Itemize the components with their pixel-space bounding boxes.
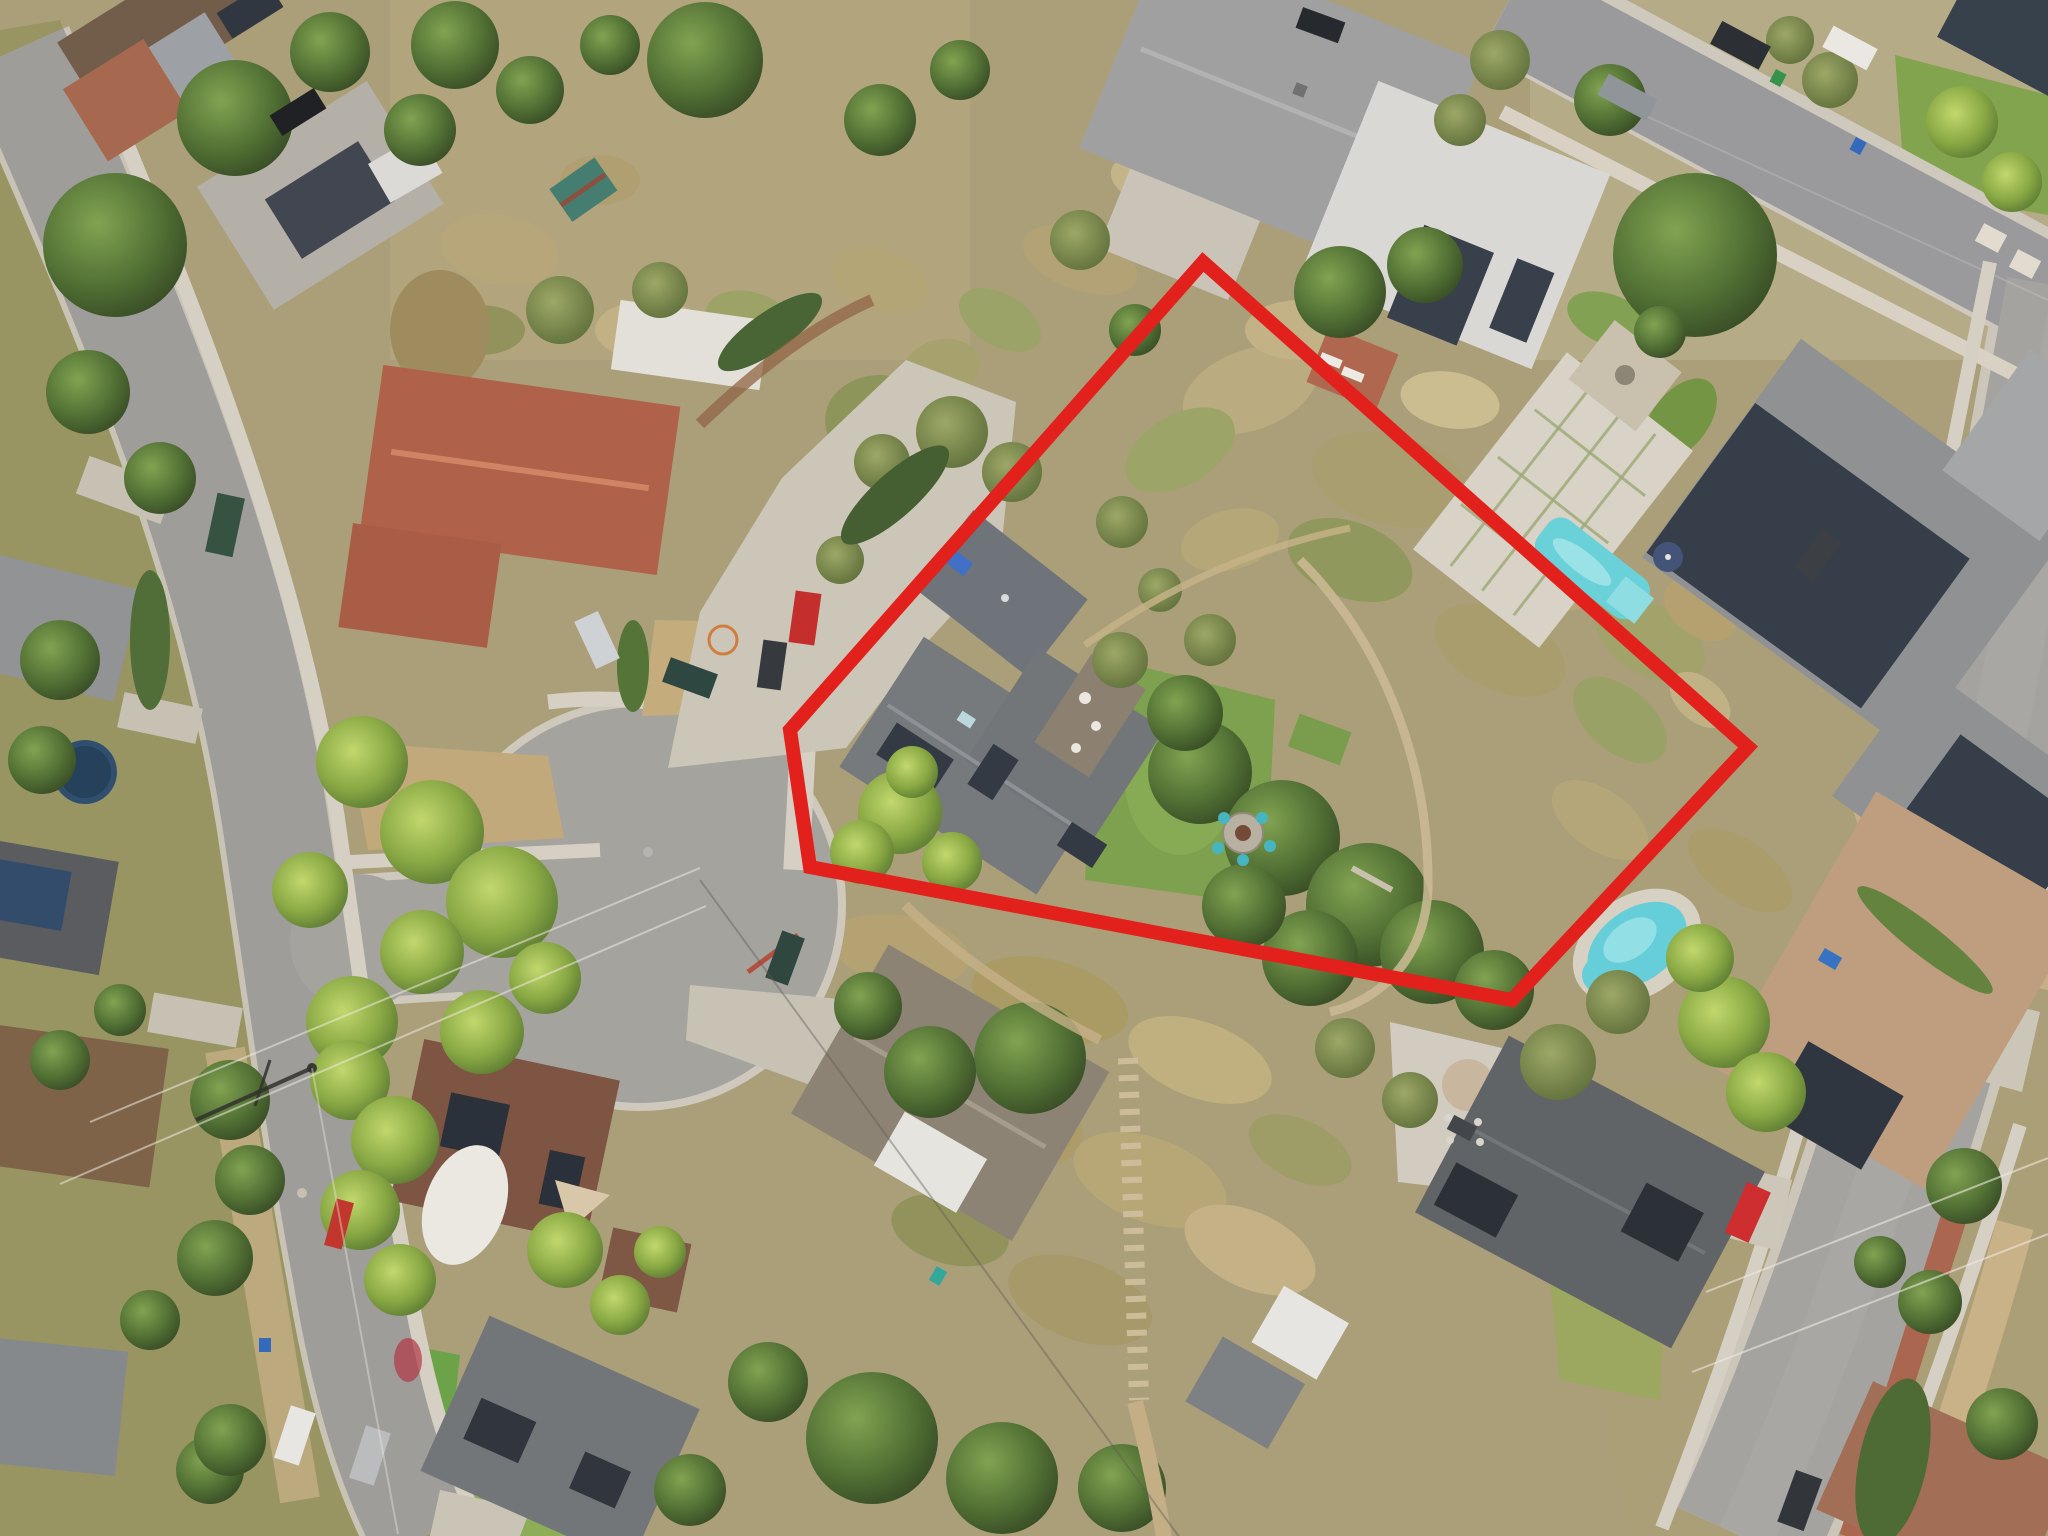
aerial-photo: Aerial drone photograph of a suburban cu… [0, 0, 2048, 1536]
aerial-photo-svg [0, 0, 2048, 1536]
scene-root [0, 0, 2048, 1536]
atmosphere-shape [0, 0, 2048, 1536]
atmosphere [0, 0, 2048, 1536]
